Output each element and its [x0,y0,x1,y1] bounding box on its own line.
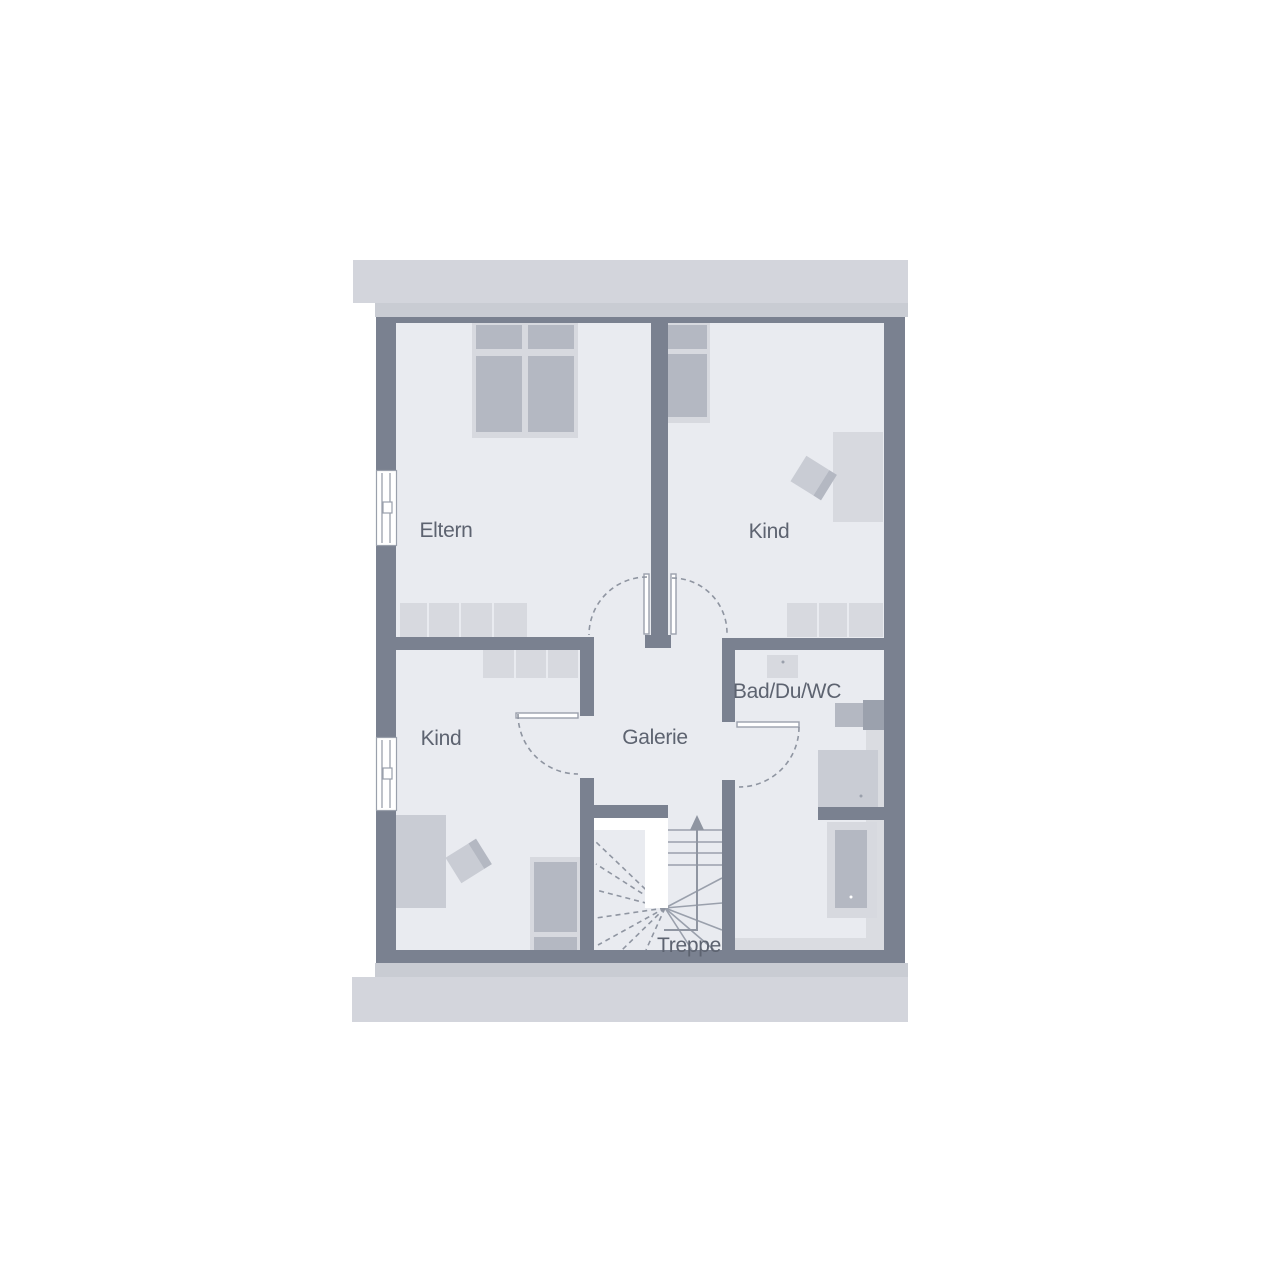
bed-mattress [476,356,522,432]
wall-exterior-left [376,317,396,963]
wall-stair-top [583,805,668,818]
bed-pillow [528,325,574,349]
room-label-galerie: Galerie [622,726,688,749]
window-icon [377,738,397,811]
door-leaf [516,713,578,718]
wall-bath-partition [818,807,884,820]
bed-pillow [534,937,577,950]
room-label-kind-top: Kind [749,520,790,543]
bed-mattress [665,354,707,417]
wall-exterior-top [376,317,905,323]
kind-top-bed-icon [662,322,710,423]
roof-band-bottom-inner [375,963,908,977]
wall-kind-bottom-lower [580,778,594,950]
wall-eltern-kind-divider [396,637,594,650]
wall-kind-bottom-upper [580,650,594,716]
roof-band-bottom-outer [352,977,908,1022]
door-leaf [671,574,676,634]
kind-top-sideboard-icon [787,603,883,637]
room-label-bad: Bad/Du/WC [733,680,841,703]
eltern-wardrobe-icon [400,603,527,637]
window-icon [377,471,397,546]
room-label-treppe: Treppe [657,934,721,957]
wall-bad-left-lower [722,780,735,950]
kind-top-desk-icon [833,432,883,522]
wall-exterior-bottom [376,950,905,963]
roof-band-top-inner [375,303,908,317]
bed-pillow [665,325,707,349]
sink-icon [767,655,798,678]
eltern-double-bed-icon [472,322,578,438]
bathtub-icon [827,822,877,918]
floor-plan-page: Eltern Kind Kind Galerie Bad/Du/WC Trepp… [0,0,1280,1280]
kind-bottom-wardrobe-icon [483,650,578,678]
kind-bottom-bed-icon [530,857,580,950]
roof-band-bottom [352,963,908,1022]
bed-pillow [476,325,522,349]
wall-exterior-right [884,317,905,963]
room-label-kind-bottom: Kind [421,727,462,750]
door-leaf [644,574,649,634]
wall-center-cap [645,635,671,648]
door-leaf [737,722,799,727]
kind-bottom-desk-icon [396,815,446,908]
bed-mattress [528,356,574,432]
floor-plan-canvas: Eltern Kind Kind Galerie Bad/Du/WC Trepp… [0,0,1280,1280]
room-label-eltern: Eltern [419,519,472,542]
wall-bad-top [722,638,884,650]
shower-icon [818,750,878,807]
toilet-icon [835,703,863,727]
bed-mattress [534,862,577,932]
roof-band-top [353,260,908,317]
wall-toilet-pier [863,700,884,730]
roof-slope-strip-bottom [735,938,884,950]
wall-center-divider [651,322,668,635]
roof-band-top-outer [353,260,908,303]
